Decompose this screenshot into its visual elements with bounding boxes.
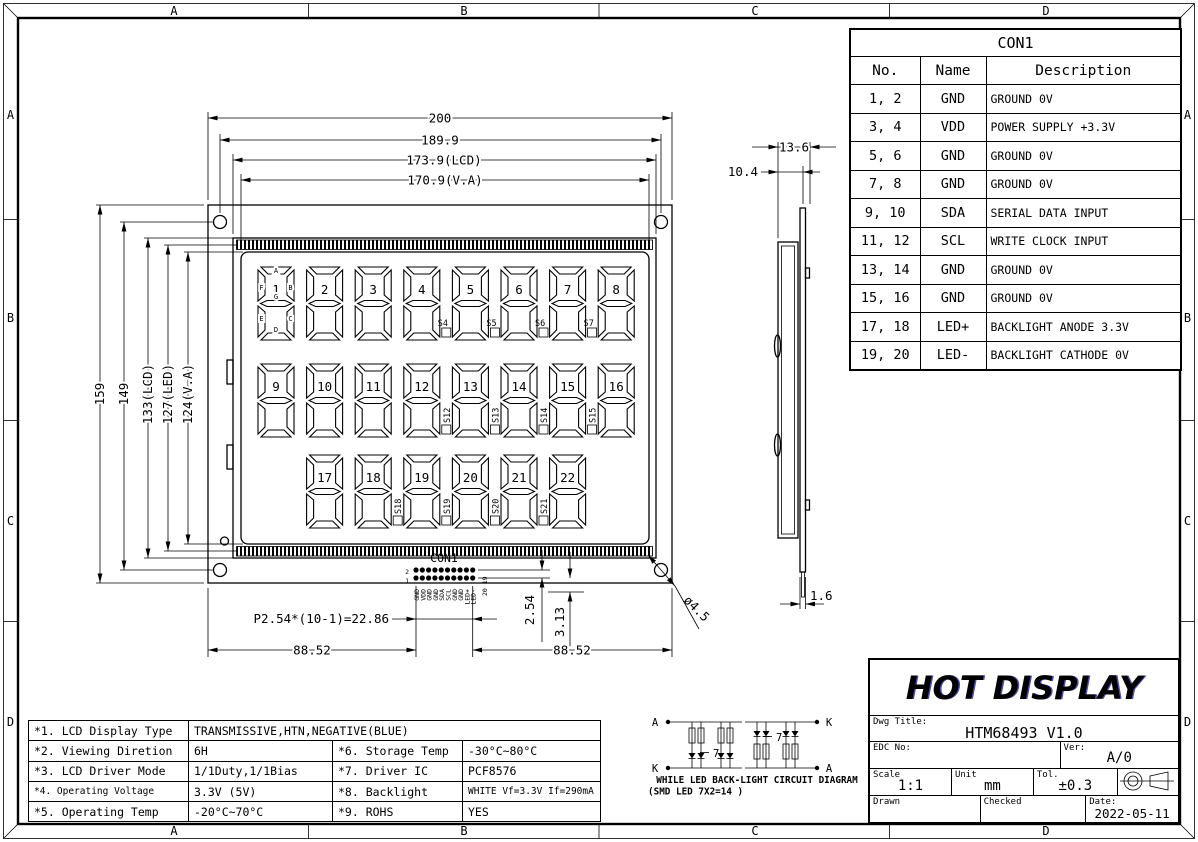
- side-tab: [806, 268, 810, 278]
- dim-lcd-thickness: 10.4: [728, 164, 758, 179]
- spec-value: YES: [463, 802, 601, 822]
- segment-e: [452, 494, 459, 525]
- segment-a: [358, 267, 388, 274]
- con1-header-name: Name: [920, 57, 986, 85]
- segment-marker: [490, 516, 499, 525]
- backlight-circuit-diagram: A K K A 7 7 WHILE LED BACK-LIGHT CIRCUIT…: [648, 717, 858, 798]
- segment-e: [501, 494, 508, 525]
- seven-segment-digit: 1ABCDEFG: [258, 267, 294, 340]
- segment-d: [455, 521, 485, 528]
- con1-pinout-table: CON1 No. Name Description 1, 2GNDGROUND …: [849, 28, 1180, 371]
- spec-value: -30°C~80°C: [463, 741, 601, 761]
- pin-number-cell: 15, 16: [850, 284, 920, 313]
- digit-number-label: 6: [515, 282, 523, 297]
- pin-number-cell: 5, 6: [850, 142, 920, 171]
- dim-row-offset: 3.13: [552, 607, 567, 637]
- connector-pin: [451, 575, 456, 580]
- segment-b: [336, 458, 343, 489]
- engineering-drawing-sheet: A B C D A B C D A B C D A B C D 1ABCDEFG…: [0, 0, 1198, 842]
- segment-d: [310, 430, 340, 437]
- digit-number-label: 3: [369, 282, 377, 297]
- pin-name-cell: GND: [920, 256, 986, 285]
- spec-label: *5. Operating Temp: [29, 802, 189, 822]
- segment-f: [258, 367, 265, 398]
- spec-label: *7. Driver IC: [333, 761, 463, 781]
- zone-label-right: B: [1184, 311, 1191, 325]
- segment-b: [433, 367, 440, 398]
- segment-b: [481, 270, 488, 301]
- segment-marker: [588, 425, 597, 434]
- segment-b: [579, 270, 586, 301]
- dim-width-va: 170.9(V.A): [407, 173, 482, 188]
- segment-b: [384, 367, 391, 398]
- pin-description-cell: WRITE CLOCK INPUT: [986, 227, 1181, 256]
- segment-b: [336, 270, 343, 301]
- segment-f: [550, 270, 557, 301]
- segment-f: [452, 270, 459, 301]
- segment-d: [455, 333, 485, 340]
- segment-e: [404, 494, 411, 525]
- segment-a: [407, 267, 437, 274]
- title-block: HOT DISPLAY Dwg Title: HTM68493 V1.0 EDC…: [868, 658, 1180, 824]
- segment-f: [501, 458, 508, 489]
- segment-d: [553, 521, 583, 528]
- pin-name-cell: SDA: [920, 199, 986, 228]
- segment-g: [406, 301, 437, 307]
- connector-pin: [464, 575, 469, 580]
- seven-segment-digit: 20: [452, 455, 488, 528]
- lcd-module-side-view: 13.6 10.4 1.6: [728, 140, 836, 610]
- segment-marker-label: S13: [491, 408, 501, 423]
- segment-d: [553, 430, 583, 437]
- seven-segment-digit: 14: [501, 364, 537, 437]
- con1-table-title: CON1: [850, 29, 1181, 57]
- segment-a: [310, 455, 340, 462]
- segment-c: [433, 403, 440, 434]
- anode-label: A: [826, 763, 833, 775]
- zone-label-bottom: C: [751, 824, 758, 838]
- connector-label: CON1: [430, 551, 458, 565]
- segment-g: [261, 398, 292, 404]
- segment-d: [407, 430, 437, 437]
- digit-number-label: 11: [366, 379, 381, 394]
- seven-segment-display-layout: 1ABCDEFG2345678S4S5S6S7910111213141516S1…: [258, 267, 634, 528]
- spec-label: *8. Backlight: [333, 781, 463, 801]
- spec-value: 1/1Duty,1/1Bias: [189, 761, 333, 781]
- segment-g: [455, 301, 486, 307]
- segment-a: [601, 267, 631, 274]
- pcb-tail: [802, 572, 805, 597]
- seven-segment-digit: 5: [452, 267, 488, 340]
- connector-pin: [470, 575, 475, 580]
- segment-g: [601, 398, 632, 404]
- segment-marker: [539, 328, 548, 337]
- digit-number-label: 8: [612, 282, 620, 297]
- segment-f: [501, 367, 508, 398]
- segment-a: [601, 364, 631, 371]
- segment-g: [552, 398, 583, 404]
- segment-a: [553, 267, 583, 274]
- zebra-connector-strip: [237, 240, 653, 250]
- segment-a: [310, 364, 340, 371]
- connector-pin: [439, 575, 444, 580]
- spec-label: *1. LCD Display Type: [29, 721, 189, 741]
- dim-connector-right: 88.52: [553, 643, 591, 658]
- segment-g: [309, 301, 340, 307]
- segment-a: [455, 455, 485, 462]
- pin-description-cell: GROUND 0V: [986, 170, 1181, 199]
- dim-height-va: 124(V.A): [180, 364, 195, 424]
- segment-f: [355, 458, 362, 489]
- pin-description-cell: BACKLIGHT ANODE 3.3V: [986, 313, 1181, 342]
- digit-number-label: 21: [511, 470, 526, 485]
- segment-b: [433, 270, 440, 301]
- segment-d: [455, 430, 485, 437]
- segment-a: [504, 455, 534, 462]
- pin-number-cell: 3, 4: [850, 113, 920, 142]
- led-symbol: [783, 731, 790, 737]
- zone-label-left: C: [7, 514, 14, 528]
- segment-g: [261, 301, 292, 307]
- pin-name-cell: SCL: [920, 227, 986, 256]
- pin-number-cell: 11, 12: [850, 227, 920, 256]
- seven-segment-digit: 12: [404, 364, 440, 437]
- segment-marker: [442, 425, 451, 434]
- con1-header-description: Description: [986, 57, 1181, 85]
- zone-label-bottom: D: [1042, 824, 1049, 838]
- segment-f: [452, 458, 459, 489]
- pin-name-cell: LED-: [920, 341, 986, 370]
- dim-height-total: 159: [92, 383, 107, 406]
- digit-number-label: 4: [418, 282, 426, 297]
- segment-f: [550, 367, 557, 398]
- connector-pin: [445, 575, 450, 580]
- segment-d: [310, 333, 340, 340]
- segment-e: [452, 306, 459, 337]
- segment-marker: [442, 516, 451, 525]
- connector-pin: [458, 567, 463, 572]
- segment-c: [336, 494, 343, 525]
- digit-number-label: 10: [317, 379, 332, 394]
- segment-f: [550, 458, 557, 489]
- led-symbol: [763, 731, 770, 737]
- dim-pin-pitch: P2.54*(10-1)=22.86: [254, 611, 389, 626]
- spec-value: -20°C~70°C: [189, 802, 333, 822]
- segment-g: [455, 489, 486, 495]
- pin-name-cell: LED+: [920, 313, 986, 342]
- segment-marker-label: S7: [584, 319, 594, 329]
- segment-marker-label: S4: [438, 319, 448, 329]
- seven-segment-digit: 3: [355, 267, 391, 340]
- connector-pin: [451, 567, 456, 572]
- segment-g: [358, 301, 389, 307]
- dim-width-total: 200: [429, 111, 452, 126]
- segment-marker: [442, 328, 451, 337]
- lcd-stack-profile: [778, 242, 798, 538]
- pin-number-cell: 7, 8: [850, 170, 920, 199]
- pin-name-cell: GND: [920, 284, 986, 313]
- digit-number-label: 12: [414, 379, 429, 394]
- zone-label-bottom: B: [460, 824, 467, 838]
- connector-pin: [432, 567, 437, 572]
- pin-number-cell: 1, 2: [850, 85, 920, 114]
- segment-b: [530, 270, 537, 301]
- segment-e: [598, 306, 605, 337]
- segment-g: [552, 301, 583, 307]
- connector-pin: [426, 575, 431, 580]
- segment-d: [601, 333, 631, 340]
- digit-number-label: 22: [560, 470, 575, 485]
- mounting-hole: [214, 216, 227, 229]
- pin-description-cell: POWER SUPPLY +3.3V: [986, 113, 1181, 142]
- pin-number-cell: 19, 20: [850, 341, 920, 370]
- date-label: Date:: [1089, 797, 1116, 807]
- segment-c: [336, 306, 343, 337]
- con1-pin-row: 13, 14GNDGROUND 0V: [850, 256, 1181, 285]
- segment-d: [553, 333, 583, 340]
- dim-hole-diameter: ø4.5: [681, 593, 713, 625]
- spec-value: WHITE Vf=3.3V If=290mA: [463, 781, 601, 801]
- seven-segment-digit: 11: [355, 364, 391, 437]
- segment-d: [261, 333, 291, 340]
- segment-c: [627, 306, 634, 337]
- segment-e: [550, 403, 557, 434]
- segment-f: [501, 270, 508, 301]
- segment-c: [287, 403, 294, 434]
- segment-d: [407, 333, 437, 340]
- segment-marker-label: S19: [443, 499, 453, 514]
- seven-segment-digit: 6: [501, 267, 537, 340]
- segment-c: [579, 403, 586, 434]
- spec-row: *3. LCD Driver Mode1/1Duty,1/1Bias*7. Dr…: [29, 761, 601, 781]
- circuit-caption: WHILE LED BACK-LIGHT CIRCUIT DIAGRAM: [656, 775, 858, 786]
- segment-b: [627, 367, 634, 398]
- segment-c: [384, 494, 391, 525]
- pin-description-cell: SERIAL DATA INPUT: [986, 199, 1181, 228]
- segment-f: [404, 270, 411, 301]
- con1-pin-row: 7, 8GNDGROUND 0V: [850, 170, 1181, 199]
- zone-label-top: C: [751, 4, 758, 18]
- segment-g: [504, 398, 535, 404]
- segment-e: [404, 403, 411, 434]
- segment-marker-label: S14: [540, 408, 550, 423]
- segment-letter-label: G: [274, 293, 278, 301]
- segment-marker: [539, 516, 548, 525]
- pin-name-cell: VDD: [920, 113, 986, 142]
- seven-segment-digit: 16: [598, 364, 634, 437]
- segment-b: [384, 270, 391, 301]
- segment-marker-label: S6: [535, 319, 545, 329]
- segment-f: [355, 270, 362, 301]
- side-tab: [806, 500, 810, 510]
- seven-segment-digit: 2: [307, 267, 343, 340]
- connector-pin: [432, 575, 437, 580]
- segment-g: [406, 398, 437, 404]
- spec-label: *9. ROHS: [333, 802, 463, 822]
- segment-d: [504, 333, 534, 340]
- checked-label: Checked: [984, 797, 1022, 807]
- segment-c: [530, 403, 537, 434]
- pin-name-cell: GND: [920, 142, 986, 171]
- digit-number-label: 15: [560, 379, 575, 394]
- digit-number-label: 17: [317, 470, 332, 485]
- segment-e: [501, 403, 508, 434]
- cathode-label: K: [826, 717, 833, 729]
- connector-pin: [470, 567, 475, 572]
- spec-label: *4. Operating Voltage: [29, 781, 189, 801]
- digit-number-label: 20: [463, 470, 478, 485]
- segment-d: [310, 521, 340, 528]
- con1-pin-row: 15, 16GNDGROUND 0V: [850, 284, 1181, 313]
- zone-label-bottom: A: [170, 824, 178, 838]
- pin-description-cell: BACKLIGHT CATHODE 0V: [986, 341, 1181, 370]
- segment-letter-label: C: [288, 315, 292, 323]
- pin-description-cell: GROUND 0V: [986, 142, 1181, 171]
- dwg-title-label: Dwg Title:: [873, 717, 927, 727]
- segment-f: [598, 367, 605, 398]
- seven-segment-digit: 13: [452, 364, 488, 437]
- connector-pin: [439, 567, 444, 572]
- segment-g: [455, 398, 486, 404]
- pin-description-cell: GROUND 0V: [986, 85, 1181, 114]
- seven-segment-digit: 15: [550, 364, 586, 437]
- segment-a: [358, 364, 388, 371]
- company-name: HOT DISPLAY: [906, 669, 1143, 707]
- segment-c: [579, 494, 586, 525]
- mounting-hole: [214, 564, 227, 577]
- spec-row: *2. Viewing Diretion6H*6. Storage Temp-3…: [29, 741, 601, 761]
- connector-pin: [413, 567, 418, 572]
- pin-number-cell: 17, 18: [850, 313, 920, 342]
- segment-c: [481, 494, 488, 525]
- segment-c: [481, 403, 488, 434]
- seven-segment-digit: 8: [598, 267, 634, 340]
- segment-a: [310, 267, 340, 274]
- edc-no-label: EDC No:: [873, 743, 911, 753]
- segment-b: [579, 367, 586, 398]
- company-logo: HOT DISPLAY: [870, 660, 1178, 715]
- seven-segment-digit: 4: [404, 267, 440, 340]
- zone-label-top: D: [1042, 4, 1049, 18]
- segment-b: [384, 458, 391, 489]
- spec-label: *6. Storage Temp: [333, 741, 463, 761]
- seven-segment-digit: 19: [404, 455, 440, 528]
- segment-f: [452, 367, 459, 398]
- pin-name-cell: GND: [920, 170, 986, 199]
- segment-e: [355, 494, 362, 525]
- segment-g: [601, 301, 632, 307]
- connector-pin: [445, 567, 450, 572]
- dim-row-pitch: 2.54: [522, 595, 537, 625]
- con1-pin-row: 1, 2GNDGROUND 0V: [850, 85, 1181, 114]
- con1-pin-row: 17, 18LED+BACKLIGHT ANODE 3.3V: [850, 313, 1181, 342]
- digit-number-label: 19: [414, 470, 429, 485]
- segment-marker-label: S21: [540, 499, 550, 514]
- segment-d: [504, 430, 534, 437]
- dim-height-holes: 149: [116, 383, 131, 406]
- digit-number-label: 14: [511, 379, 526, 394]
- segment-d: [601, 430, 631, 437]
- segment-e: [307, 403, 314, 434]
- digit-number-label: 13: [463, 379, 478, 394]
- segment-f: [307, 367, 314, 398]
- dim-width-holes: 189.9: [421, 133, 459, 148]
- dim-width-lcd: 173.9(LCD): [406, 153, 481, 168]
- segment-a: [358, 455, 388, 462]
- pin-description-cell: GROUND 0V: [986, 284, 1181, 313]
- segment-e: [404, 306, 411, 337]
- segment-b: [627, 270, 634, 301]
- segment-d: [261, 430, 291, 437]
- seven-segment-digit: 22: [550, 455, 586, 528]
- segment-a: [504, 267, 534, 274]
- segment-c: [530, 494, 537, 525]
- digit-number-label: 5: [467, 282, 475, 297]
- segment-g: [358, 489, 389, 495]
- segment-marker: [393, 516, 402, 525]
- seven-segment-digit: 7: [550, 267, 586, 340]
- spec-value: 3.3V (5V): [189, 781, 333, 801]
- segment-letter-label: B: [288, 284, 292, 292]
- glass-tab: [227, 445, 233, 469]
- segment-d: [407, 521, 437, 528]
- specifications-table: *1. LCD Display Type TRANSMISSIVE,HTN,NE…: [28, 720, 600, 822]
- pin-name-label: LED-: [470, 589, 478, 605]
- spec-value: 6H: [189, 741, 333, 761]
- led-symbol: [689, 753, 696, 759]
- segment-d: [358, 430, 388, 437]
- digit-number-label: 18: [366, 470, 381, 485]
- segment-c: [433, 494, 440, 525]
- con1-pin-row: 3, 4VDDPOWER SUPPLY +3.3V: [850, 113, 1181, 142]
- scale-label: Scale: [873, 770, 900, 780]
- segment-letter-label: E: [259, 315, 263, 323]
- segment-f: [355, 367, 362, 398]
- segment-c: [384, 306, 391, 337]
- segment-e: [355, 403, 362, 434]
- segment-e: [452, 403, 459, 434]
- segment-a: [553, 364, 583, 371]
- zone-label-top: A: [170, 4, 178, 18]
- glass-tab: [227, 360, 233, 384]
- seven-segment-digit: 10: [307, 364, 343, 437]
- seven-segment-digit: 9: [258, 364, 294, 437]
- connector-pin: [458, 575, 463, 580]
- pin-name-cell: GND: [920, 85, 986, 114]
- pin-number-label: 2: [405, 568, 409, 576]
- segment-g: [552, 489, 583, 495]
- dim-pcb-thickness: 1.6: [810, 588, 833, 603]
- segment-marker: [588, 328, 597, 337]
- segment-g: [309, 398, 340, 404]
- led-symbol: [698, 753, 705, 759]
- led-symbol: [792, 731, 799, 737]
- segment-a: [407, 455, 437, 462]
- con1-connector-pins: GNDVDDGNDGNDSDASCLGNDGNDLED+LED-2120 19: [405, 567, 489, 604]
- segment-a: [553, 455, 583, 462]
- zone-label-top: B: [460, 4, 467, 18]
- segment-b: [433, 458, 440, 489]
- connector-pin: [413, 575, 418, 580]
- digit-number-label: 9: [272, 379, 280, 394]
- segment-b: [481, 367, 488, 398]
- segment-e: [550, 494, 557, 525]
- dim-total-thickness: 13.6: [779, 140, 809, 155]
- connector-pin: [420, 567, 425, 572]
- segment-letter-label: F: [259, 284, 263, 292]
- segment-g: [358, 398, 389, 404]
- spec-value: TRANSMISSIVE,HTN,NEGATIVE(BLUE): [189, 721, 601, 741]
